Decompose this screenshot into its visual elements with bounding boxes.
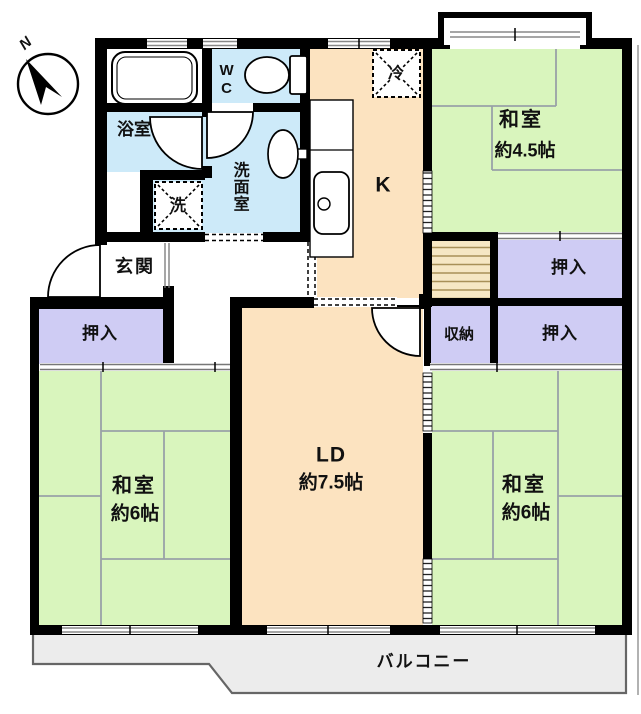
bathtub	[112, 52, 197, 104]
living-label: LD	[316, 445, 346, 468]
washer-label: 洗	[170, 197, 186, 214]
balcony-label: バルコニー	[377, 653, 472, 671]
closet-ne-label: 押入	[551, 259, 587, 277]
toilet	[245, 56, 307, 94]
window-bottom-ld	[267, 625, 390, 635]
entrance-door-arc	[48, 245, 100, 297]
bathroom-label: 浴室	[117, 121, 151, 139]
washitsu-se-label: 和室	[502, 475, 546, 497]
kitchen-label: K	[375, 175, 390, 198]
washroom-label: 洗面室	[230, 162, 247, 213]
washitsu-ne-size: 約4.5帖	[494, 141, 555, 160]
step-storage	[430, 241, 490, 299]
window-bottom-sw	[62, 625, 198, 635]
balcony-shape	[33, 630, 626, 693]
floor-plan: N 浴室 WC 洗面室 洗 冷 玄関 K 和室 約4.5帖 押入 収納 押入 押…	[0, 0, 641, 714]
bay-window	[438, 12, 592, 49]
washitsu-sw-size: 約6帖	[111, 505, 160, 526]
storage-label: 収納	[444, 327, 474, 343]
floorplan-graphics	[0, 0, 641, 714]
window-top-kitchen	[328, 38, 390, 48]
window-bottom-se	[440, 625, 595, 635]
compass-icon	[18, 54, 78, 114]
closet-e-label: 押入	[542, 325, 578, 343]
washitsu-se-size: 約6帖	[502, 504, 551, 525]
wc-label: WC	[218, 62, 234, 98]
fridge-label: 冷	[388, 65, 404, 82]
entrance-label: 玄関	[115, 257, 155, 276]
closet-w-label: 押入	[82, 325, 118, 343]
washitsu-ne-label: 和室	[499, 110, 543, 132]
kitchen-counter	[310, 100, 353, 257]
washitsu-sw-floor	[39, 371, 230, 625]
living-size: 約7.5帖	[299, 474, 363, 495]
washitsu-sw-label: 和室	[112, 476, 156, 498]
washitsu-se-floor	[432, 370, 622, 625]
window-top-bath	[147, 39, 187, 48]
window-top-wc	[203, 39, 237, 48]
